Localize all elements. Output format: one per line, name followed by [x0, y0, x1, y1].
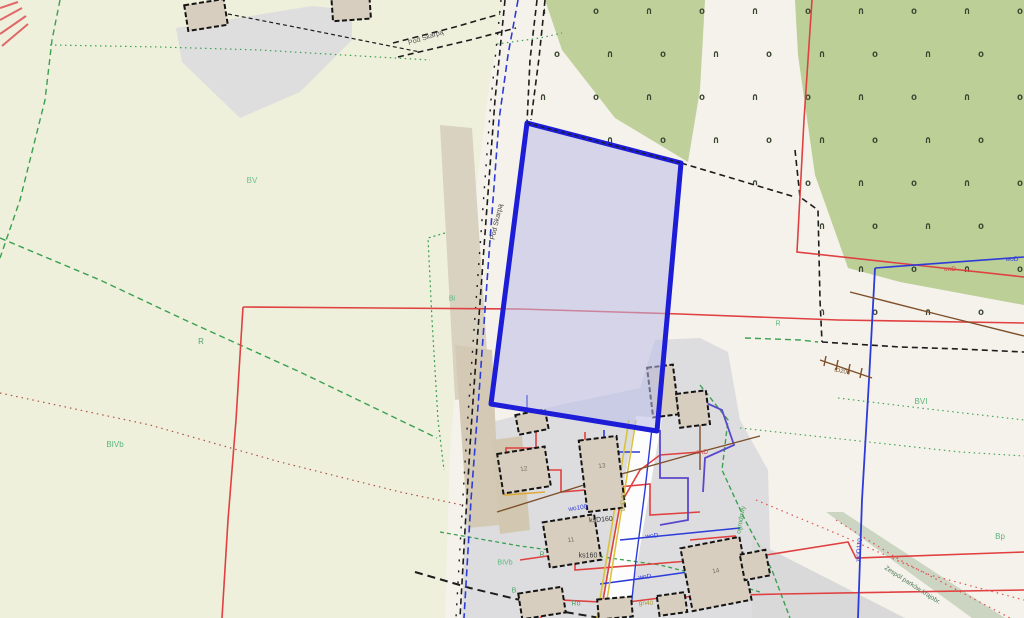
area-label-ro: Ro [572, 601, 581, 608]
building-number-13: 13 [598, 463, 606, 470]
area-label-b-cluster: B [512, 588, 517, 595]
building-number-11: 11 [567, 537, 575, 544]
utility-label-gn40: gn40 [639, 601, 653, 608]
area-label-r-right: R [775, 321, 780, 328]
area-label-bivb-left: BIVb [106, 441, 123, 449]
building-number-12: 12 [520, 466, 528, 474]
utility-label-end: enD [696, 450, 708, 457]
area-label-bv: BV [247, 177, 258, 185]
area-label-bp: Bp [995, 533, 1005, 541]
utility-label-wod110: woD110 [855, 538, 864, 562]
area-label-r-left: R [198, 338, 204, 346]
area-label-bivb-cluster: BIVb [497, 560, 512, 567]
utility-label-wnd: wnD [638, 574, 652, 582]
utility-label-td200: tD200 [834, 367, 851, 376]
area-label-bi: Bi [449, 296, 455, 303]
map-viewport[interactable]: ∩o∩o∩o∩o∩oo∩o∩o∩o∩o∩∩o∩o∩o∩o∩oo∩o∩o∩o∩o∩… [0, 0, 1024, 618]
utility-label-wod-right: woD [1005, 257, 1018, 264]
street-label-pod-skarpa-side: Pod Skarpą [489, 203, 504, 240]
building-number-14: 14 [712, 568, 720, 576]
area-label-bvi: BVI [915, 398, 928, 406]
area-label-r-cluster: R [539, 552, 544, 559]
utility-label-ks160: ks160 [579, 553, 598, 560]
utility-label-wod: woD [645, 533, 659, 541]
utility-label-ond: onD [944, 267, 956, 274]
